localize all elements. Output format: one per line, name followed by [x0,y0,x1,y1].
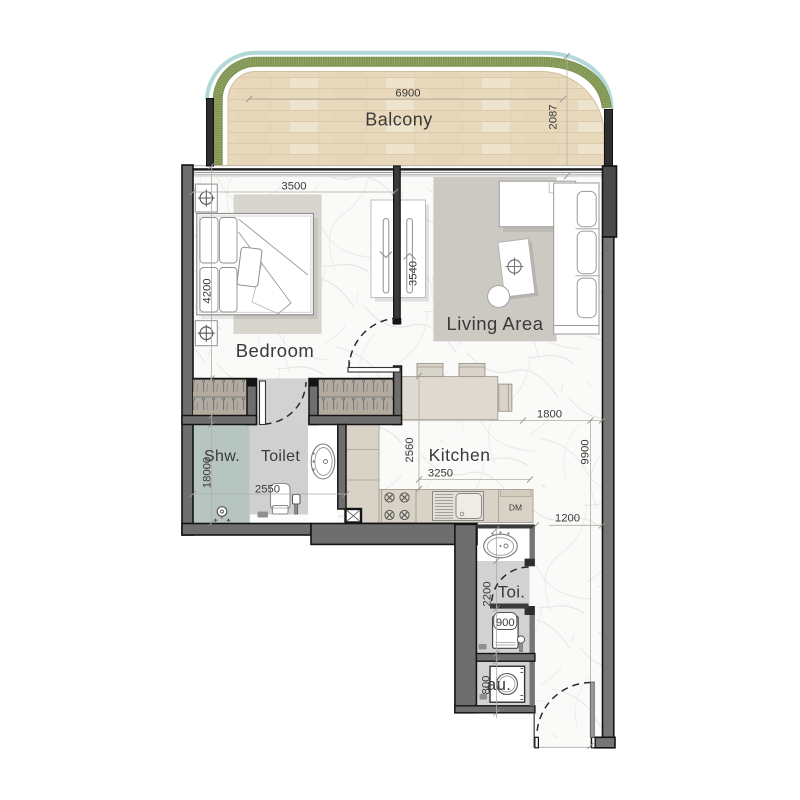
svg-text:3500: 3500 [281,181,306,193]
svg-text:Bedroom: Bedroom [236,340,315,361]
svg-text:DM: DM [509,503,522,513]
svg-text:2560: 2560 [404,437,416,462]
svg-text:2087: 2087 [548,104,560,129]
svg-text:900: 900 [496,617,515,629]
svg-text:1200: 1200 [555,513,580,525]
svg-text:2200: 2200 [482,581,494,606]
svg-text:Toilet: Toilet [261,448,300,465]
svg-text:4200: 4200 [202,278,214,303]
svg-text:au.: au. [487,675,512,694]
svg-text:Toi.: Toi. [498,583,526,602]
svg-text:6900: 6900 [395,88,420,100]
svg-text:1800: 1800 [537,409,562,421]
svg-text:3540: 3540 [408,261,420,286]
svg-text:Shw.: Shw. [204,448,240,465]
svg-text:Living Area: Living Area [446,313,543,334]
svg-text:3250: 3250 [428,468,453,480]
svg-text:9900: 9900 [580,439,592,464]
svg-text:Balcony: Balcony [365,110,433,130]
svg-text:Kitchen: Kitchen [429,445,491,465]
svg-text:2550: 2550 [255,484,280,496]
